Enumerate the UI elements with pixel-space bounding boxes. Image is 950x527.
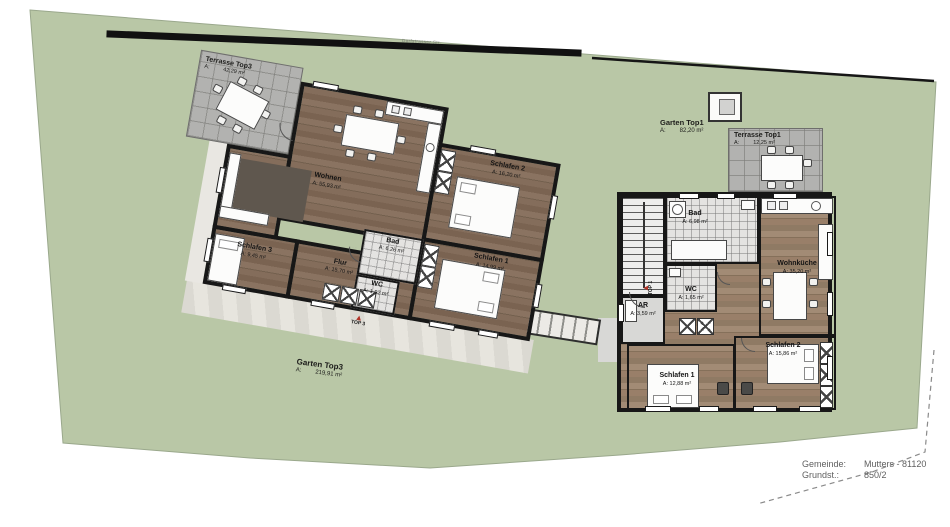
door-swing-arc <box>717 272 730 285</box>
pillow <box>477 301 494 314</box>
sink-icon <box>741 200 755 210</box>
chair <box>762 278 771 286</box>
stove-icon <box>767 201 776 210</box>
chair <box>345 148 355 157</box>
chair <box>212 83 224 94</box>
room-label-schlafen1-top1: Schlafen 1 A: 12,88 m² <box>637 372 717 388</box>
chair <box>352 105 362 114</box>
top1-entrance-marker: ▲ TOP 1 <box>642 275 654 301</box>
bathtub <box>671 240 727 260</box>
terrace-table-group <box>203 72 281 148</box>
window <box>827 292 833 316</box>
terrace-top1-area: 12,25 m² <box>753 140 775 146</box>
chair <box>333 124 343 133</box>
gemeinde-label: Gemeinde: <box>802 459 864 469</box>
room-label-wc-top1: WC A: 1,65 m² <box>667 286 715 302</box>
chair <box>762 300 771 308</box>
sink-icon <box>669 268 681 277</box>
window <box>799 406 821 412</box>
garten-top1-label: Garten Top1 A:82,20 m² <box>660 118 704 136</box>
garten-top1-area: 82,20 m² <box>680 128 704 134</box>
chair <box>396 135 406 144</box>
desk-chair <box>741 382 753 395</box>
terrace-top1: Terrasse Top1 A:12,25 m² <box>728 128 823 192</box>
utility-shaft <box>708 92 742 122</box>
sink-icon <box>811 201 821 211</box>
window <box>753 406 777 412</box>
window <box>699 406 719 412</box>
desk-chair <box>717 382 729 395</box>
chair <box>785 146 794 154</box>
pillow <box>482 271 499 284</box>
window <box>679 193 699 199</box>
wardrobe-icon <box>697 318 714 335</box>
dining-table <box>773 272 807 320</box>
pillow <box>459 182 476 195</box>
pillow <box>676 395 692 404</box>
chair <box>809 300 818 308</box>
gemeinde-value: Mutters - 81120 <box>864 459 926 469</box>
chair <box>366 152 376 161</box>
utility-shaft-inner <box>719 99 735 115</box>
room-label-schlafen2-top1: Schlafen 2 A: 15,86 m² <box>743 342 823 358</box>
footer-parcel-info: Gemeinde: Mutters - 81120 Grundst.: 850/… <box>802 459 926 480</box>
window <box>645 406 671 412</box>
pillow <box>804 367 814 380</box>
chair <box>767 181 776 189</box>
chair <box>374 109 384 118</box>
window <box>773 193 797 199</box>
site-plan: Dorfstrasser Str. Garten Top1 A:82,20 m²… <box>0 0 950 527</box>
chair <box>785 181 794 189</box>
dining-table <box>761 155 803 181</box>
pillow <box>653 395 669 404</box>
window <box>717 193 735 199</box>
chair <box>232 123 244 134</box>
pillow <box>454 213 471 226</box>
top1-marker-label: TOP 1 <box>648 281 654 295</box>
stove-icon <box>403 107 412 116</box>
chair <box>809 278 818 286</box>
bed <box>448 176 520 238</box>
wardrobe-icon <box>322 283 342 303</box>
terrace-top1-area-label: A: <box>734 140 739 146</box>
room-label-wohnkueche-top1: Wohnküche A: 35,20 m² <box>759 260 835 276</box>
garten-top1-name: Garten Top1 <box>660 118 704 128</box>
wardrobe-icon <box>679 318 696 335</box>
chair <box>803 159 812 167</box>
stove-icon <box>391 105 400 114</box>
terrace-top1-label: Terrasse Top1 A:12,25 m² <box>734 131 781 147</box>
building-top1: Bad A: 6,98 m² Wohnküche A: 35,20 m² WC … <box>617 192 832 412</box>
chair <box>216 115 228 126</box>
wardrobe-icon <box>820 386 833 408</box>
room-label-bad-top1: Bad A: 6,98 m² <box>665 210 725 226</box>
grundst-label: Grundst.: <box>802 470 864 480</box>
garten-top1-area-label: A: <box>660 128 666 134</box>
window <box>827 232 833 256</box>
window <box>827 356 833 380</box>
grundst-value: 850/2 <box>864 470 926 480</box>
room-label-ar-top1: AR A: 3,59 m² <box>623 302 663 318</box>
stove-icon <box>779 201 788 210</box>
terrace-top1-name: Terrasse Top1 <box>734 131 781 140</box>
terrace-top3-area-label: A: <box>204 64 210 71</box>
garten-top3-area-label: A: <box>295 368 301 375</box>
